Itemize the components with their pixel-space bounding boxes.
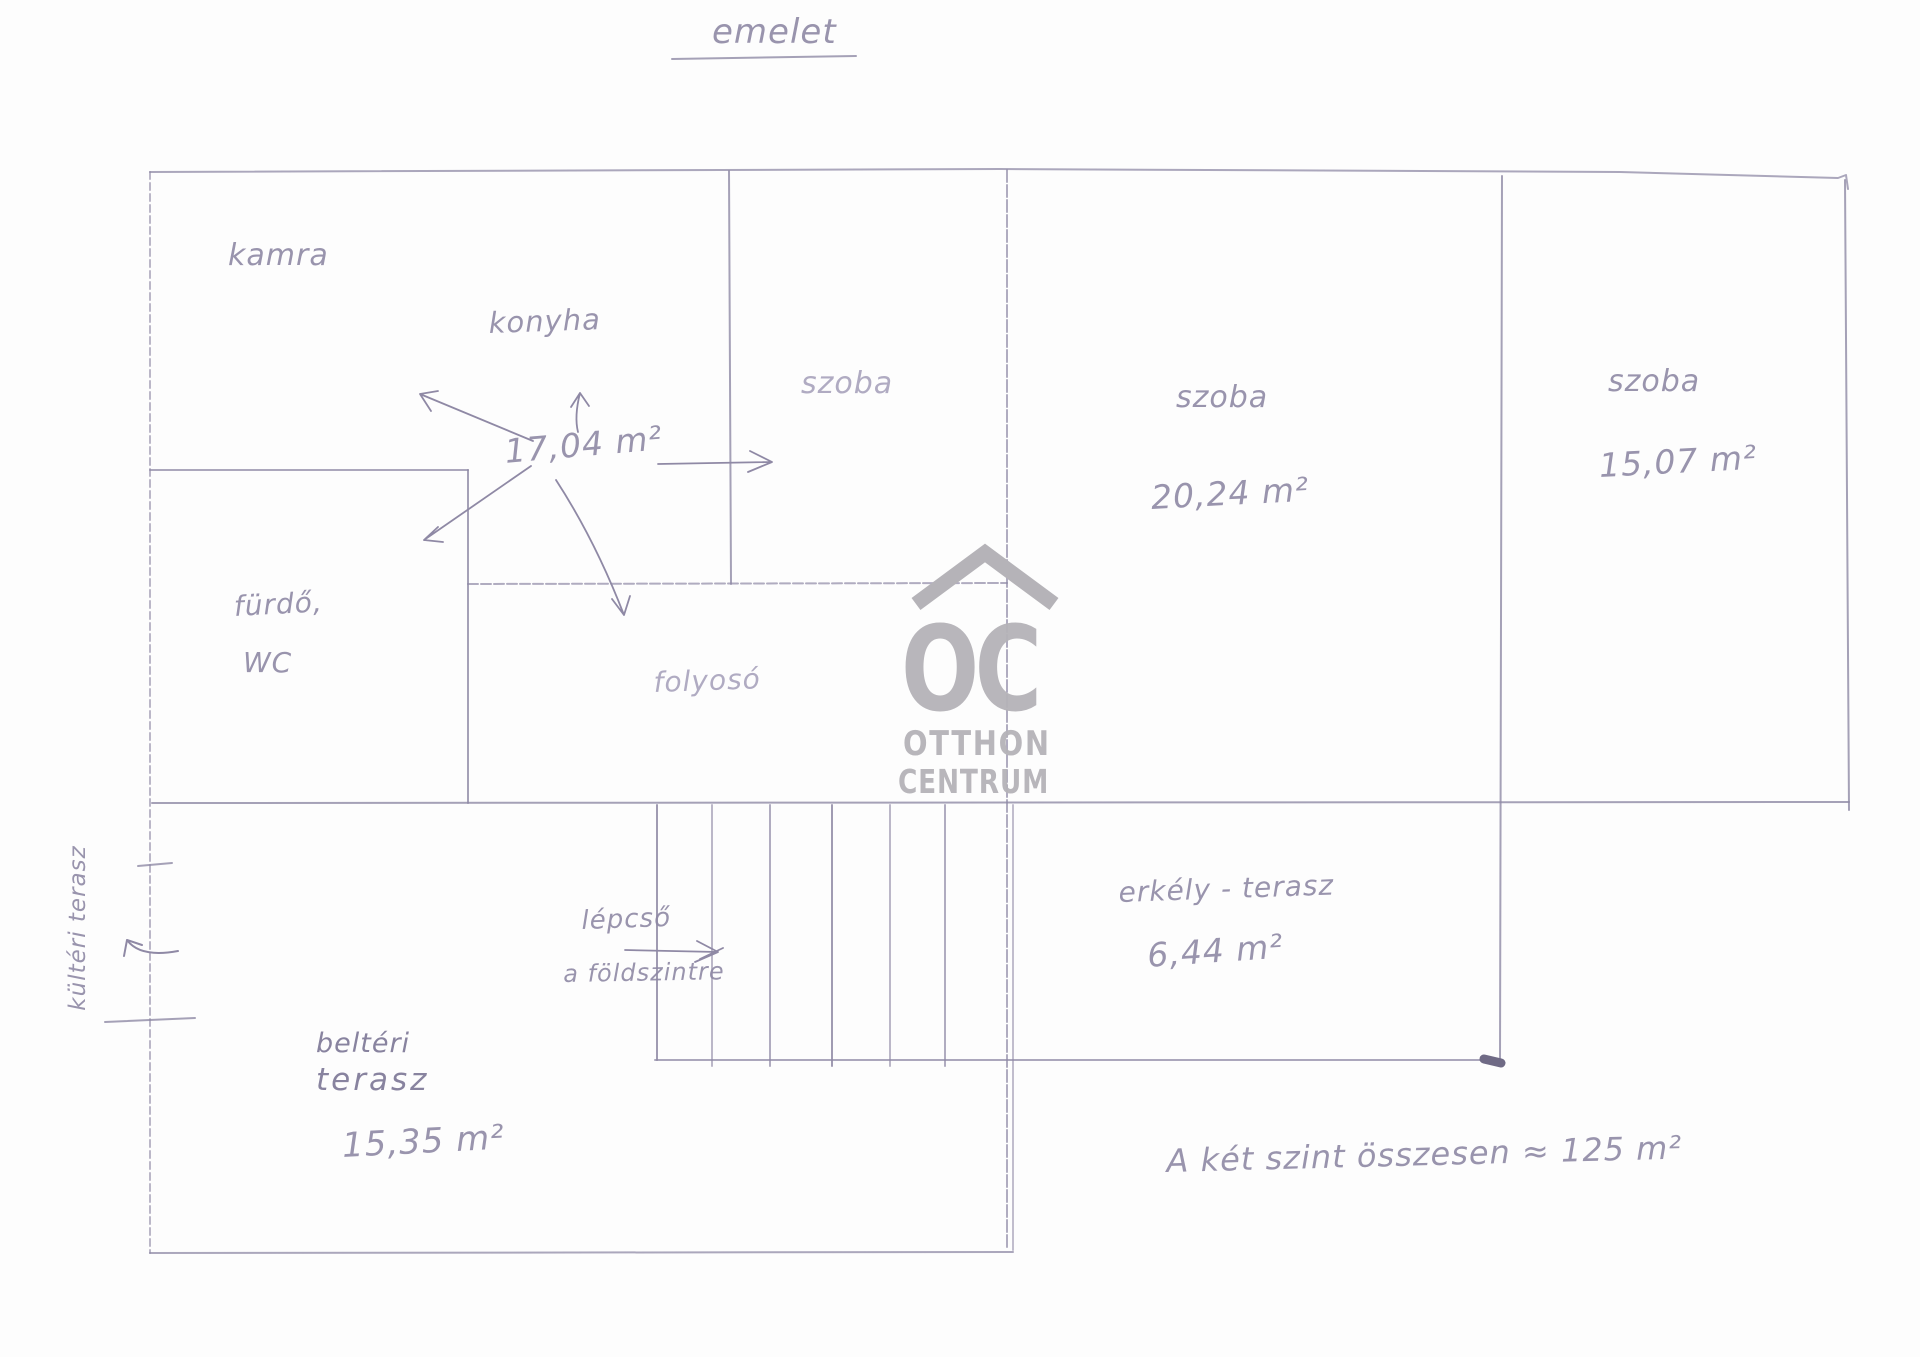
room-label-furdo: fürdő,	[233, 585, 324, 623]
floorplan-sketch-page: OC OTTHON CENTRUM emelet kamra konyha 17…	[0, 0, 1920, 1357]
room-label-wc: WC	[243, 646, 292, 679]
room-label-szoba-3: szoba	[1608, 364, 1700, 399]
watermark-line2: CENTRUM	[898, 762, 1049, 801]
area-label-szoba-2: 20,24 m²	[1150, 470, 1310, 517]
room-label-kulteri-terasz: kültéri terasz	[65, 845, 91, 1010]
stairs-label-line2: a földszintre	[563, 957, 725, 988]
home-roof-icon	[916, 553, 1054, 604]
area-label-belteri-terasz: 15,35 m²	[341, 1117, 506, 1165]
room-label-kamra: kamra	[228, 238, 329, 273]
room-label-folyoso: folyosó	[653, 662, 761, 699]
page-title: emelet	[712, 12, 837, 52]
room-label-szoba-1: szoba	[801, 366, 893, 401]
watermark-monogram: OC	[901, 600, 1037, 738]
area-label-szoba-3: 15,07 m²	[1598, 438, 1758, 485]
room-label-konyha: konyha	[488, 302, 601, 340]
room-label-szoba-2: szoba	[1176, 380, 1268, 415]
stairs-label-line1: lépcső	[581, 903, 671, 936]
room-label-belteri-line2: terasz	[316, 1062, 429, 1098]
watermark-line1: OTTHON	[903, 724, 1051, 764]
room-label-belteri-line1: beltéri	[316, 1028, 410, 1059]
